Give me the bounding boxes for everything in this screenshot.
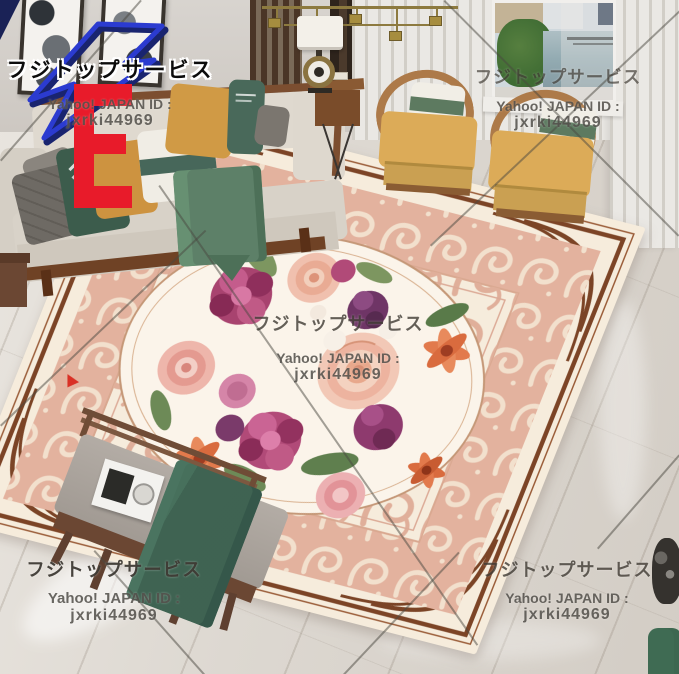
floor-vase [652, 538, 679, 604]
chandelier [262, 6, 458, 9]
table-lamp-foot [308, 88, 332, 93]
table-lamp-base [303, 56, 335, 88]
side-table [315, 90, 360, 126]
curtain-right-panel [610, 0, 679, 248]
chandelier-shade [429, 16, 442, 26]
floor-sheen [600, 300, 646, 520]
chandelier-shade [268, 18, 281, 28]
green-plant-pot [648, 628, 679, 674]
chandelier-stem [396, 6, 398, 32]
sofa-pillow-gray-right [253, 104, 290, 148]
armchair-1 [372, 68, 490, 198]
logo-letter: E [74, 84, 132, 208]
console-table [0, 263, 27, 307]
living-room-product-photo: E フジトップサービス Yahoo! JAPAN ID : jxrki44969… [0, 0, 679, 674]
bench-leg [51, 531, 74, 565]
table-lamp-shade [297, 16, 343, 50]
chandelier-shade [349, 14, 362, 24]
console-table-top [0, 253, 30, 263]
chandelier-shade [389, 31, 402, 41]
sofa-throw-blanket [173, 165, 267, 267]
